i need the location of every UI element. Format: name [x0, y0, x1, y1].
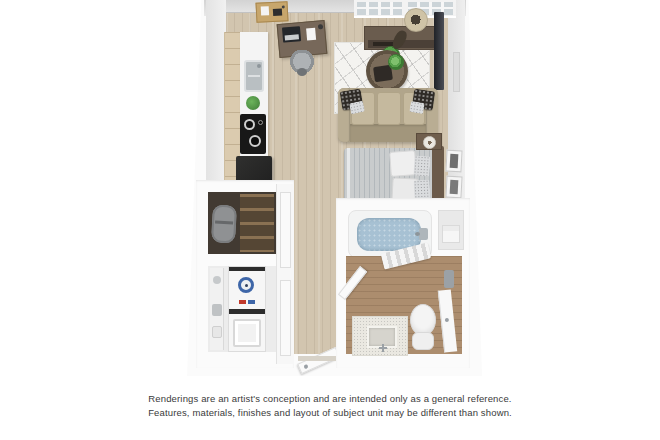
- washer-button-red: [239, 300, 246, 304]
- towel-bar: [444, 270, 454, 288]
- laptop: [282, 26, 301, 43]
- kitchen-sink: [244, 60, 264, 92]
- toilet-tank: [412, 332, 434, 350]
- washer-top-trim: [229, 267, 265, 271]
- disclaimer-line-1: Renderings are an artist's conception an…: [0, 392, 660, 406]
- corkboard-pin: [282, 5, 285, 8]
- dryer-door-panel: [233, 319, 261, 347]
- closet-doors: [276, 184, 294, 364]
- desk-lamp: [318, 24, 323, 29]
- burner: [258, 120, 263, 125]
- closet-door-panel: [280, 280, 291, 356]
- coffee-table: [366, 50, 408, 92]
- wall-art-edge: [453, 52, 460, 92]
- sofa-back: [350, 124, 426, 142]
- wall-art-print: [450, 180, 459, 194]
- shelf-stack: [240, 194, 274, 252]
- floorplan-page: Renderings are an artist's conception an…: [0, 0, 660, 440]
- towel-shelf-niche: [438, 210, 464, 250]
- tub-faucet: [419, 228, 428, 240]
- right-door-handle: [445, 318, 449, 322]
- sofa-cushion: [377, 92, 401, 125]
- duffel-strap: [215, 221, 233, 225]
- wall-art-print: [450, 154, 459, 168]
- shelf-item: [213, 276, 221, 284]
- chair-base: [297, 68, 307, 76]
- entry-door-handle: [303, 364, 308, 369]
- wall-tv: [434, 12, 444, 90]
- sink-divider: [248, 75, 260, 77]
- shelf-item: [212, 326, 222, 338]
- closet-shelves: [208, 192, 276, 254]
- disclaimer-text: Renderings are an artist's conception an…: [0, 392, 660, 419]
- tub-faucet-handle: [415, 232, 420, 236]
- table-lamp: [423, 136, 436, 149]
- laundry-nook: [208, 266, 276, 352]
- washer-button-blue: [248, 300, 255, 304]
- corkboard-note: [261, 6, 269, 15]
- accent-pillow: [413, 155, 430, 176]
- cooktop: [240, 114, 266, 154]
- towel-stack: [442, 225, 460, 243]
- nightstand: [416, 133, 442, 150]
- washer-mid-trim: [229, 309, 265, 314]
- throw-pillow-striped: [409, 101, 425, 114]
- dial-needle: [245, 284, 248, 287]
- shelf-item: [212, 304, 222, 316]
- duffel-bag: [211, 204, 237, 243]
- disclaimer-line-2: Features, materials, finishes and layout…: [0, 406, 660, 420]
- burner: [244, 119, 255, 130]
- closet-door-panel: [280, 192, 291, 268]
- desk-chair: [288, 48, 316, 78]
- wall-art-frame: [445, 176, 462, 199]
- corkboard: [255, 1, 288, 23]
- table-plant: [388, 54, 404, 70]
- stacked-washer-dryer: [228, 266, 266, 352]
- wall-face-left: [206, 0, 226, 184]
- floor-lamp: [404, 8, 428, 32]
- burner: [249, 135, 261, 147]
- counter-plant: [246, 96, 260, 110]
- vanity: [352, 316, 408, 356]
- desk-paper: [306, 28, 316, 41]
- floorplan-rendering: [186, 0, 482, 376]
- sink-faucet: [257, 64, 261, 68]
- laundry-shelf: [210, 268, 224, 350]
- laptop-keyboard: [285, 34, 299, 40]
- washer-dial: [238, 277, 254, 293]
- wall-art-frame: [445, 150, 462, 173]
- window-sash-left: [357, 2, 402, 15]
- sink-faucet-cross: [379, 344, 387, 352]
- corkboard-note: [273, 8, 282, 15]
